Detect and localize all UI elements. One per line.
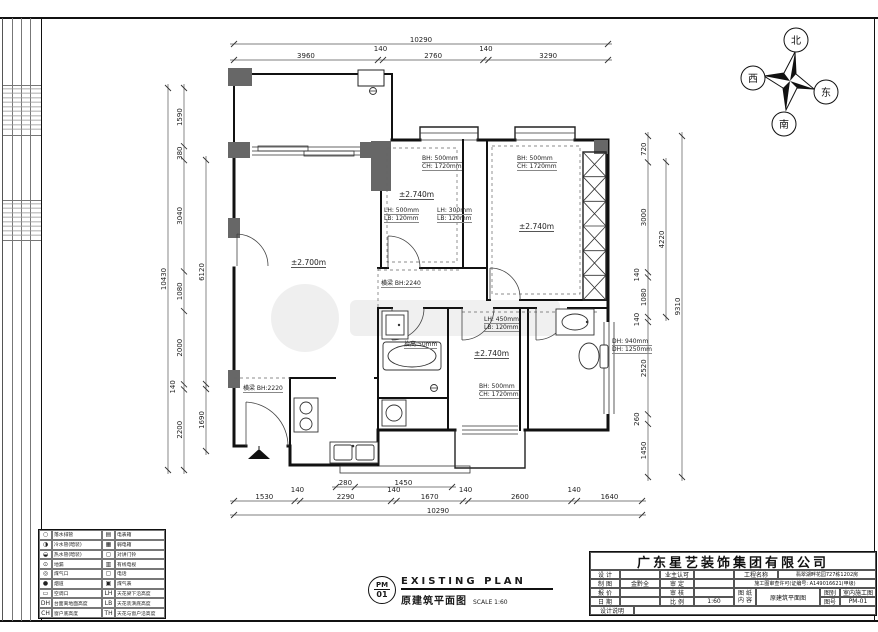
dim-label: 2290 (337, 493, 355, 501)
dim-label: 10430 (160, 268, 168, 290)
legend-symbol-icon: ◻ (102, 550, 115, 560)
tb-permit: 施工图审查许可(证编号: A149016621(甲级) (734, 579, 876, 588)
dim-label: 3000 (640, 208, 648, 226)
dim-label: 2520 (640, 359, 648, 377)
dim-chain-top-total: 10290 (230, 36, 612, 47)
dim-label: 140 (633, 313, 641, 326)
compass-star (764, 52, 814, 110)
dim-label: 260 (633, 412, 641, 425)
tb-value (694, 570, 734, 579)
tb-label-project: 工程名称 (734, 570, 778, 579)
tb-notes-empty (634, 606, 876, 615)
tb-label-type: 图别 (820, 588, 840, 597)
bathroom2-sink (556, 309, 594, 335)
tb-label-owner-approve: 业主认可 (660, 570, 694, 579)
dim-chain-right-in-1: 4220 (658, 158, 669, 321)
dim-label: 3960 (297, 52, 315, 60)
legend-label: 天花梁下沿高度 (115, 589, 165, 599)
stove (294, 398, 318, 432)
compass-north-label: 北 (791, 35, 801, 47)
dim-label: 380 (176, 147, 184, 160)
drawing-sheet: 1029039601402760140329028014501530140229… (0, 0, 878, 632)
dim-label: 280 (339, 479, 352, 487)
legend-label: 冷水管(暗装) (52, 540, 102, 550)
dim-label: 140 (633, 268, 641, 281)
legend-label: 有线电视 (115, 559, 165, 569)
legend-symbol-icon: ▤ (102, 530, 115, 540)
legend-label: 电话 (115, 569, 165, 579)
dim-label: 140 (169, 380, 177, 393)
legend-symbol-icon: ● (39, 579, 52, 589)
compass-west-label: 西 (748, 74, 758, 85)
entrance-arrow (248, 446, 270, 459)
window-note: DH: 940mmDH: 1250mm (612, 338, 652, 354)
dim-label: 140 (568, 486, 581, 494)
kitchen-sink (330, 442, 378, 463)
floor-note: 抬高:50mm (404, 341, 437, 349)
legend-label: 空调口 (52, 589, 102, 599)
bathroom1-sink (382, 311, 408, 339)
dim-label: 140 (479, 45, 492, 53)
dim-label: 10290 (427, 507, 449, 515)
tb-label-scale: 比 例 (660, 597, 694, 606)
legend-symbol-icon: ◒ (39, 550, 52, 560)
dim-chain-bottom-total: 10290 (230, 507, 646, 518)
dim-label: 1080 (176, 282, 184, 300)
compass-east-label: 东 (821, 86, 831, 99)
tb-value-scale: 1:60 (694, 597, 734, 606)
legend-symbol-icon: CH (39, 608, 52, 618)
plan-scale: SCALE 1:60 (473, 599, 508, 606)
dim-label: 3290 (539, 52, 557, 60)
beam-note: 横梁 BH:2240 (381, 280, 421, 288)
tb-label-approver: 审 定 (660, 579, 694, 588)
tb-label-checker: 审 核 (660, 588, 694, 597)
plan-title-en: EXISTING PLAN (401, 576, 553, 587)
dim-label: 2760 (424, 52, 442, 60)
dim-chain-bottom-segs: 15301402290140167014026001401640 (230, 486, 646, 504)
tb-value (694, 579, 734, 588)
legend-symbol-icon: ▥ (102, 559, 115, 569)
tb-label-design: 设 计 (590, 570, 620, 579)
window-note: BH: 500mmCH: 1720mm (517, 155, 557, 171)
legend-symbol-icon: TH (102, 608, 115, 618)
tb-value-project: 翡翠湖畔花园727栋1202房 (778, 570, 876, 579)
legend-symbol-icon: LH (102, 589, 115, 599)
walls (234, 74, 615, 473)
legend-symbol-icon: ○ (39, 530, 52, 540)
dim-label: 10290 (410, 36, 432, 44)
legend-label: 天花装潢底高度 (115, 598, 165, 608)
legend-label: 弱电箱 (115, 540, 165, 550)
level-mark: ±2.740m (399, 190, 434, 200)
legend-label: 台面离地面高度 (52, 598, 102, 608)
legend-label: 窗户底高度 (52, 608, 102, 618)
washing-machine (382, 400, 406, 426)
dim-label: 2600 (511, 493, 529, 501)
tb-value (620, 597, 660, 606)
tb-value-number: PM-01 (840, 597, 876, 606)
dim-label: 3040 (176, 207, 184, 225)
tb-value-sheet: 原建筑平面图 (756, 588, 820, 606)
legend-label: 落水排管 (52, 530, 102, 540)
dim-label: 1080 (640, 288, 648, 306)
shaft-cabinet (583, 152, 606, 300)
legend-label: 地漏 (52, 559, 102, 569)
dim-label: 9310 (674, 298, 682, 316)
dim-label: 140 (459, 486, 472, 494)
beam-note: 横梁 BH:2220 (243, 385, 283, 393)
legend-symbol-icon: DH (39, 598, 52, 608)
window-note: BH: 500mmCH: 1720mm (422, 155, 462, 171)
legend-label: 煤气口 (52, 569, 102, 579)
dim-label: 4220 (658, 231, 666, 249)
level-mark: ±2.740m (474, 349, 509, 359)
beam-note: LH: 300mmLB: 120mm (437, 207, 472, 223)
title-block: 广东星艺装饰集团有限公司 设 计 业主认可 制 图 金黔全 审 定 报 价 审 … (589, 551, 877, 616)
dim-label: 720 (640, 142, 648, 155)
legend-symbol-icon: ▢ (102, 569, 115, 579)
dim-chain-left-segs: 15903803040108020001402200 (169, 84, 187, 474)
tb-value (620, 570, 660, 579)
legend-symbol-icon: ⊙ (39, 559, 52, 569)
tb-value (620, 588, 660, 597)
dim-chain-right-total: 9310 (674, 132, 685, 481)
dim-label: 1450 (640, 442, 648, 460)
dim-chain-right-segs: 7203000140108014025202601450 (633, 132, 651, 481)
legend-symbol-icon: ▭ (39, 589, 52, 599)
dim-label: 140 (387, 486, 400, 494)
dim-label: 1590 (176, 108, 184, 126)
tb-label-number: 图号 (820, 597, 840, 606)
level-mark: ±2.740m (519, 222, 554, 232)
tb-label-date: 日 期 (590, 597, 620, 606)
dim-label: 140 (291, 486, 304, 494)
beam-note: LH: 450mmLB: 120mm (484, 316, 519, 332)
dim-label: 1670 (421, 493, 439, 501)
sheet-number-badge: PM 01 (368, 576, 396, 604)
legend-symbol-icon: LB (102, 598, 115, 608)
legend-label: 煤气表 (115, 579, 165, 589)
dim-chain-left-in-1: 6120 (198, 156, 209, 388)
legend-label: 烟道 (52, 579, 102, 589)
plan-title-cn: 原建筑平面图 (401, 592, 467, 607)
legend-label: 热水管(暗装) (52, 550, 102, 560)
fixtures (248, 88, 608, 464)
dim-label: 1530 (255, 493, 273, 501)
tb-label-quote: 报 价 (590, 588, 620, 597)
tb-value-drafter: 金黔全 (620, 579, 660, 588)
dim-label: 1640 (601, 493, 619, 501)
window-note: BH: 500mmCH: 1720mm (479, 383, 519, 399)
drawing-stamp: PM 01 EXISTING PLAN 原建筑平面图 SCALE 1:60 (368, 576, 553, 607)
legend-symbol-icon: ▦ (102, 540, 115, 550)
tb-label-drafter: 制 图 (590, 579, 620, 588)
legend-symbol-icon: ◎ (39, 569, 52, 579)
legend-table: ○落水排管▤电表箱◑冷水管(暗装)▦弱电箱◒热水管(暗装)◻对讲门铃⊙地漏▥有线… (38, 529, 166, 619)
dim-label: 6120 (198, 263, 206, 281)
tb-value-type: 室内施工图 (840, 588, 876, 597)
stamp-underline (401, 588, 553, 590)
toilet (579, 343, 608, 369)
legend-symbol-icon: ▣ (102, 579, 115, 589)
company-name: 广东星艺装饰集团有限公司 (590, 552, 876, 570)
compass: 北 西 东 南 (741, 28, 838, 136)
level-mark: ±2.700m (291, 258, 326, 268)
legend-label: 电表箱 (115, 530, 165, 540)
dim-label: 2000 (176, 339, 184, 357)
tb-label-sheet-content: 图 纸内 容 (734, 588, 756, 606)
tb-value (694, 588, 734, 597)
sheet-code-top: PM (374, 581, 390, 590)
dim-chain-left-total: 10430 (160, 84, 171, 474)
sheet-code-bottom: 01 (376, 590, 387, 599)
dim-chain-left-in-2: 1690 (198, 385, 209, 455)
tb-label-notes: 设计说明 (590, 606, 634, 615)
dim-label: 2200 (176, 421, 184, 439)
dim-label: 1690 (198, 411, 206, 429)
legend-label: 天花与窗户沿高度 (115, 608, 165, 618)
dim-chain-top-segs: 396014027601403290 (230, 45, 612, 63)
legend-symbol-icon: ◑ (39, 540, 52, 550)
compass-south-label: 南 (779, 118, 789, 131)
beam-note: LH: 500mmLB: 120mm (384, 207, 419, 223)
dim-label: 140 (374, 45, 387, 53)
legend-label: 对讲门铃 (115, 550, 165, 560)
